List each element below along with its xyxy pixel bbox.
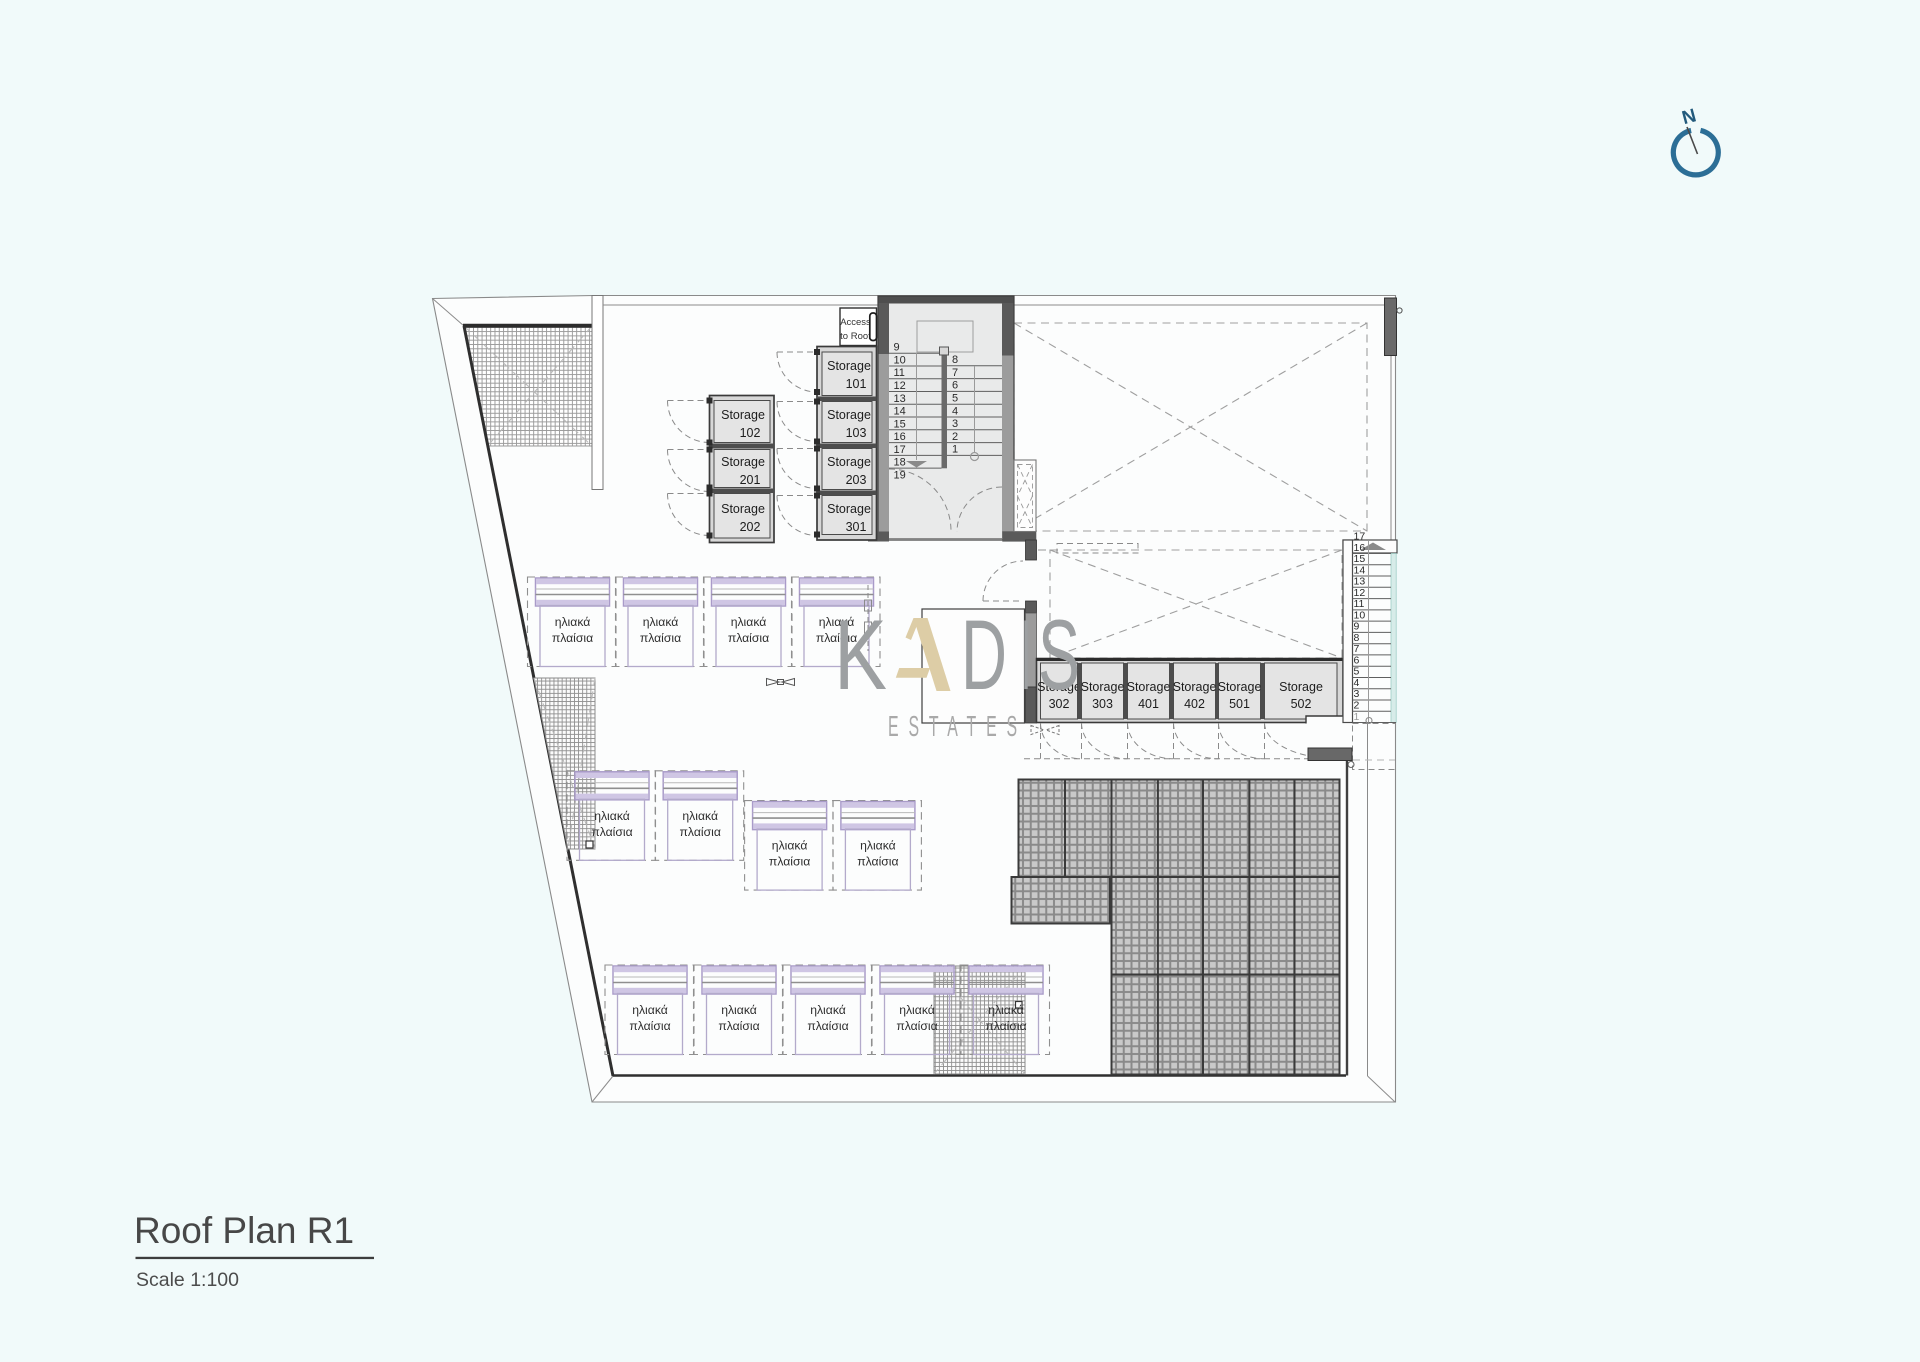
svg-text:201: 201	[740, 473, 761, 487]
svg-text:Scale 1:100: Scale 1:100	[136, 1269, 239, 1291]
svg-text:1: 1	[952, 444, 958, 456]
svg-text:17: 17	[894, 444, 906, 456]
svg-text:Storage: Storage	[1127, 680, 1171, 694]
svg-text:S: S	[1038, 599, 1080, 710]
svg-text:11: 11	[1354, 598, 1365, 610]
svg-text:14: 14	[894, 406, 906, 418]
svg-text:6: 6	[1354, 654, 1360, 666]
svg-text:102: 102	[740, 426, 761, 440]
svg-text:101: 101	[846, 377, 867, 391]
svg-text:501: 501	[1229, 697, 1250, 711]
svg-text:14: 14	[1354, 564, 1366, 576]
svg-text:203: 203	[846, 473, 867, 487]
svg-text:Storage: Storage	[827, 408, 871, 422]
svg-text:I: I	[1021, 599, 1031, 710]
svg-text:12: 12	[894, 380, 906, 392]
svg-text:16: 16	[894, 431, 906, 443]
svg-text:Storage: Storage	[827, 455, 871, 469]
svg-text:10: 10	[894, 355, 906, 367]
svg-text:to Roof: to Roof	[840, 331, 871, 342]
svg-text:502: 502	[1291, 697, 1312, 711]
svg-text:3: 3	[1354, 688, 1360, 700]
svg-text:401: 401	[1138, 697, 1159, 711]
svg-text:D: D	[961, 599, 1007, 710]
svg-text:Roof Plan R1: Roof Plan R1	[134, 1210, 354, 1251]
svg-text:17: 17	[1354, 531, 1366, 543]
svg-text:5: 5	[952, 393, 958, 405]
svg-text:Access: Access	[840, 317, 871, 328]
svg-text:12: 12	[1354, 587, 1366, 599]
svg-text:3: 3	[952, 418, 958, 430]
svg-text:2: 2	[1354, 700, 1360, 712]
svg-text:Storage: Storage	[1218, 680, 1262, 694]
svg-text:K: K	[834, 599, 887, 710]
svg-text:Storage: Storage	[721, 455, 765, 469]
svg-text:103: 103	[846, 426, 867, 440]
svg-text:5: 5	[1354, 666, 1360, 678]
svg-text:9: 9	[1354, 621, 1360, 633]
svg-text:15: 15	[894, 418, 906, 430]
svg-text:13: 13	[1354, 576, 1366, 588]
svg-text:Storage: Storage	[827, 502, 871, 516]
svg-text:4: 4	[952, 405, 958, 417]
svg-text:Storage: Storage	[827, 359, 871, 373]
svg-text:11: 11	[894, 367, 905, 379]
svg-text:9: 9	[894, 342, 900, 354]
svg-text:13: 13	[894, 393, 906, 405]
svg-text:16: 16	[1354, 542, 1366, 554]
svg-text:7: 7	[952, 367, 958, 379]
svg-text:8: 8	[1354, 632, 1360, 644]
svg-text:7: 7	[1354, 643, 1360, 655]
svg-text:Storage: Storage	[1279, 680, 1323, 694]
svg-text:Storage: Storage	[1173, 680, 1217, 694]
svg-text:15: 15	[1354, 553, 1366, 565]
svg-text:Storage: Storage	[1081, 680, 1125, 694]
svg-text:303: 303	[1092, 697, 1113, 711]
svg-text:402: 402	[1184, 697, 1205, 711]
svg-text:202: 202	[740, 520, 761, 534]
svg-text:Storage: Storage	[721, 408, 765, 422]
svg-text:18: 18	[894, 457, 906, 469]
svg-text:4: 4	[1354, 677, 1360, 689]
svg-text:301: 301	[846, 520, 867, 534]
svg-text:1: 1	[1354, 711, 1360, 723]
svg-text:6: 6	[952, 380, 958, 392]
svg-text:2: 2	[952, 431, 958, 443]
svg-text:ESTATES: ESTATES	[888, 711, 1027, 743]
svg-text:10: 10	[1354, 609, 1366, 621]
svg-text:8: 8	[952, 354, 958, 366]
svg-text:Storage: Storage	[721, 502, 765, 516]
